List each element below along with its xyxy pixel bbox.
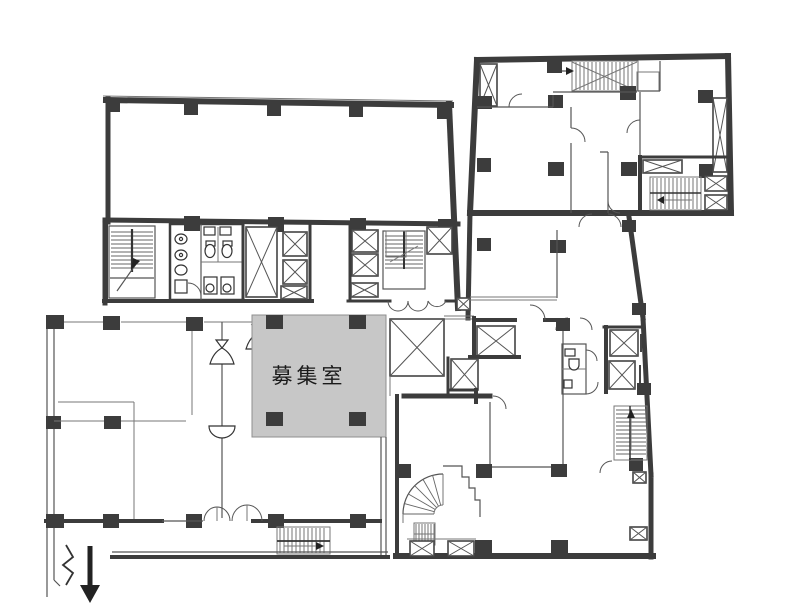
wc-fixtures-icon [175,227,234,294]
column [477,220,646,315]
staircase-se-icon [650,177,701,210]
column [107,101,454,233]
elevator-east-icon [604,327,643,392]
spiral-staircase-icon [403,466,480,523]
staircase-west-icon [106,226,155,298]
vacant-room-label: 募集室 [272,364,347,388]
elevator-core-1 [243,224,310,301]
floorplan-image: 募集室 [0,0,787,612]
entrance-arrow-icon [80,546,100,603]
left-building [103,96,458,311]
middle-right-section [444,213,646,330]
wc-area [170,224,243,300]
staircase-top-icon [548,61,659,91]
shaft-large-icon [390,319,444,376]
entry-steps-icon [277,527,330,554]
lower-left-hall: 募集室 [46,315,388,603]
shaft-nw-icon [477,64,497,109]
elevator-core-2 [350,224,452,311]
staircase-core-icon [383,231,425,289]
shaft-east-icon [713,98,727,172]
lower-right-building [390,318,653,557]
break-line-icon [63,545,73,585]
wc-area-right [562,344,598,394]
upper-right-building [470,56,731,213]
elevator-shaft-icon [246,227,277,297]
floorplan-svg: 募集室 [0,0,787,612]
vacant-room: 募集室 [252,315,386,437]
double-door-icon [204,505,262,521]
